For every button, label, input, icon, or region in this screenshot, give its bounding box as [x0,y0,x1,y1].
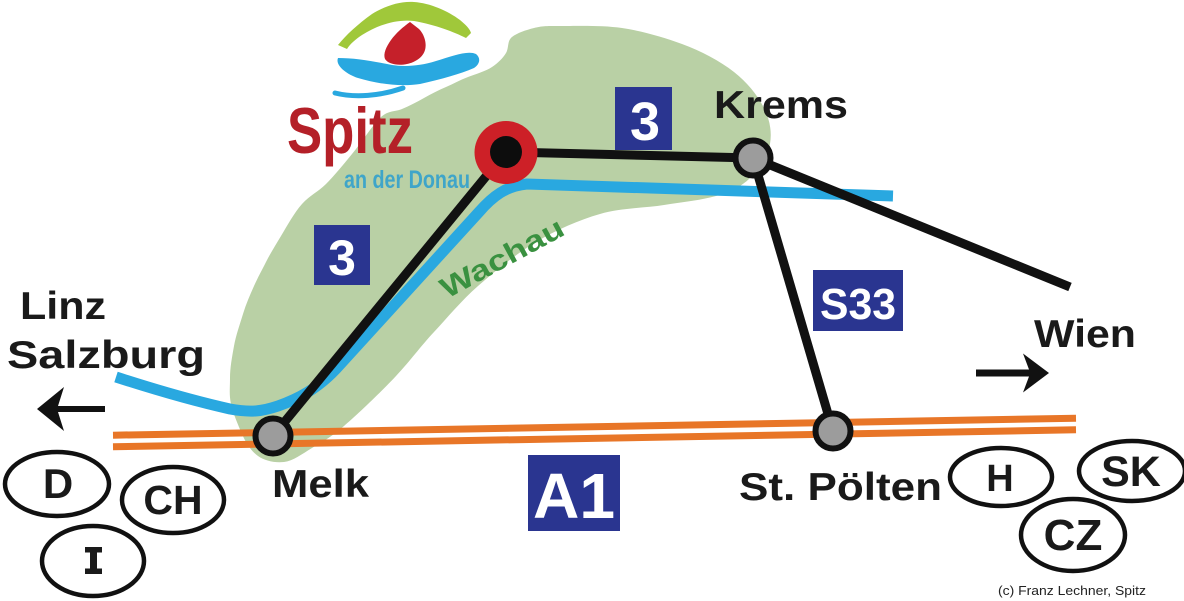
svg-text:St. Pölten: St. Pölten [739,466,942,509]
svg-text:Wien: Wien [1034,313,1136,356]
svg-text:Spitz: Spitz [287,94,413,167]
svg-text:Krems: Krems [714,84,848,127]
svg-text:3: 3 [328,230,356,286]
svg-text:D: D [43,460,73,507]
svg-text:CZ: CZ [1044,511,1103,560]
svg-text:3: 3 [630,92,660,152]
svg-text:CH: CH [143,477,202,523]
svg-text:(c) Franz Lechner, Spitz: (c) Franz Lechner, Spitz [998,583,1146,598]
svg-text:an der Donau: an der Donau [344,166,470,194]
svg-text:A1: A1 [533,460,615,532]
svg-text:S33: S33 [820,280,896,329]
svg-text:H: H [986,458,1013,500]
svg-text:SK: SK [1101,448,1161,496]
svg-text:Linz: Linz [20,285,106,328]
svg-text:Salzburg: Salzburg [7,334,205,377]
svg-text:Melk: Melk [272,463,369,506]
